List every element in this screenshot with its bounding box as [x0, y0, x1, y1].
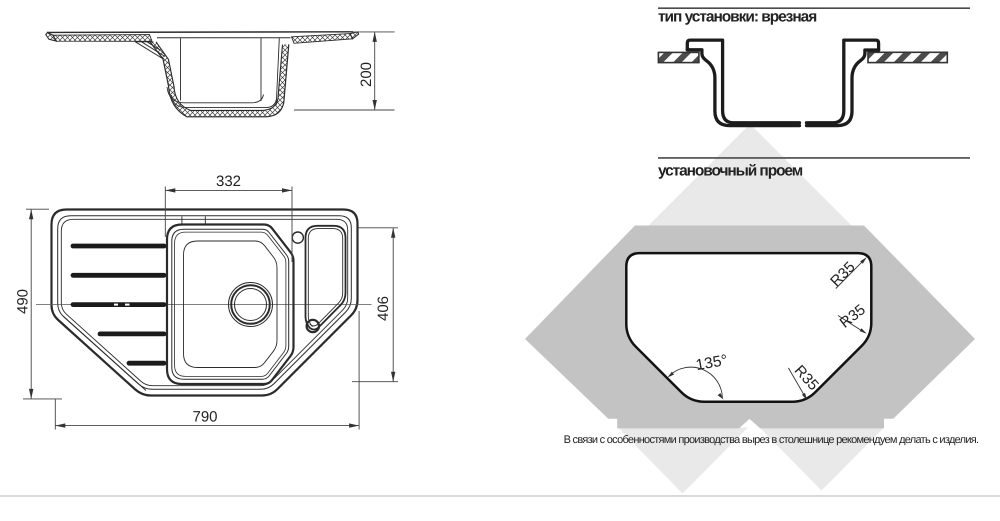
svg-text:В связи с особенностями произв: В связи с особенностями производства выр… — [564, 434, 979, 446]
svg-text:490: 490 — [15, 289, 32, 314]
svg-text:200: 200 — [358, 62, 375, 87]
svg-text:тип установки: врезная: тип установки: врезная — [658, 9, 816, 26]
svg-text:установочный проем: установочный проем — [658, 163, 803, 180]
svg-text:332: 332 — [216, 173, 241, 190]
svg-text:790: 790 — [192, 409, 217, 426]
svg-text:406: 406 — [375, 296, 392, 321]
